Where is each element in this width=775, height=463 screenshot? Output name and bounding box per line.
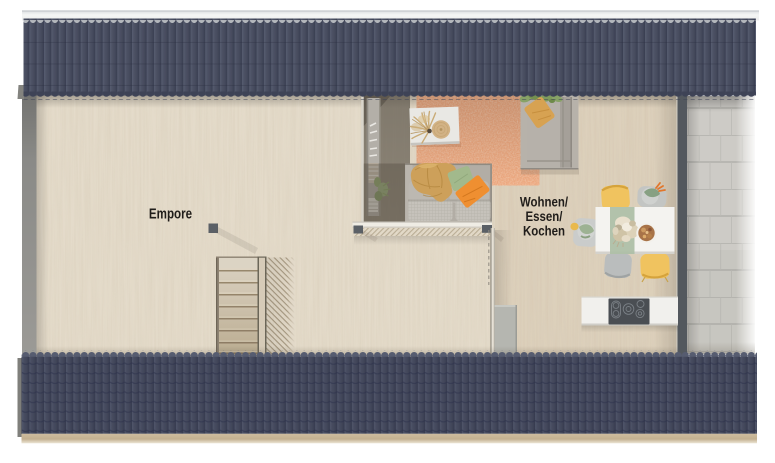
- svg-text:Wohnen/: Wohnen/: [520, 195, 569, 210]
- svg-text:Empore: Empore: [149, 205, 192, 222]
- svg-text:Essen/: Essen/: [526, 209, 563, 224]
- svg-text:Kochen: Kochen: [523, 224, 565, 239]
